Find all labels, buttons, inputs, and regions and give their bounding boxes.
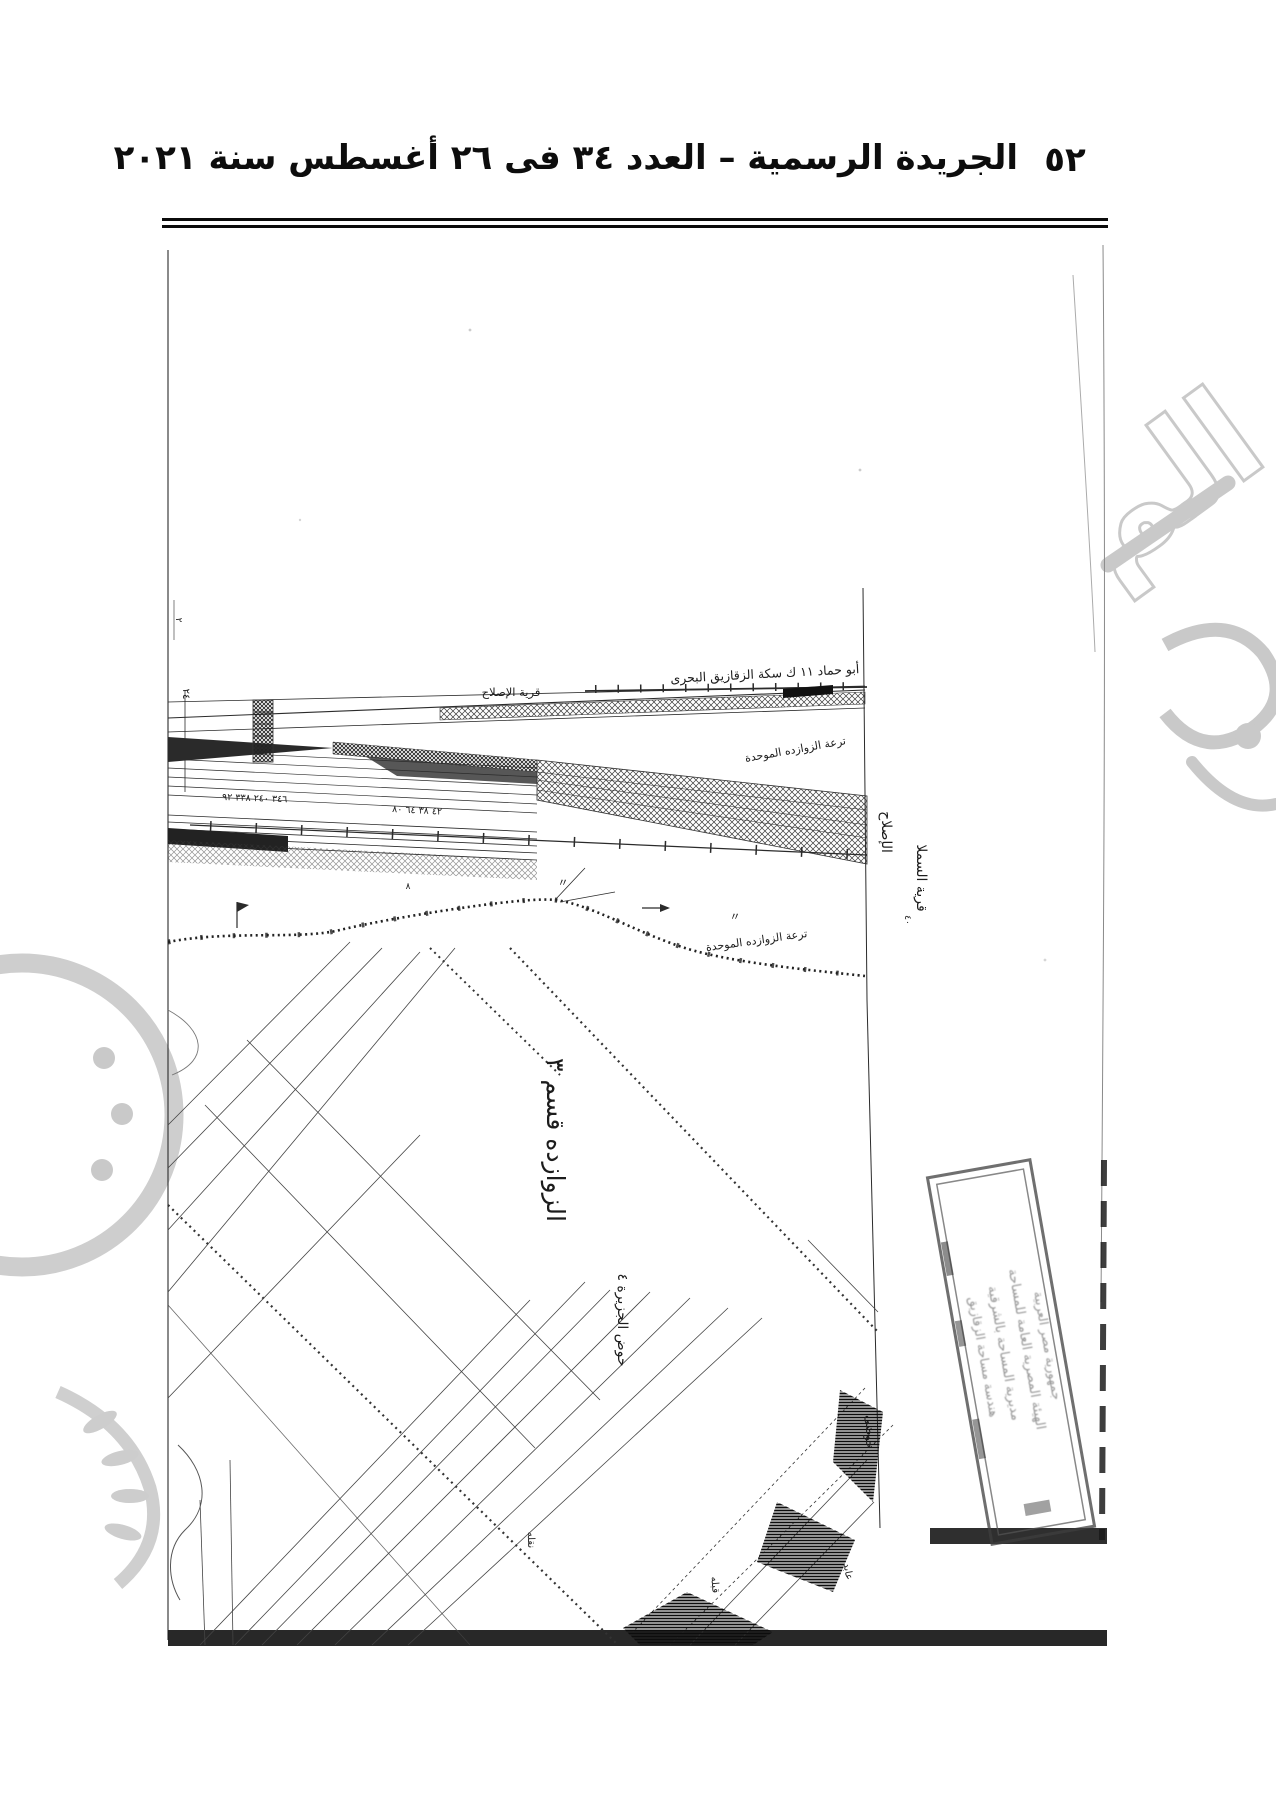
survey-numbers-row2: ٤٢ ٣٨ ٦٤ ٨٠ bbox=[392, 804, 442, 818]
canal-mid-label: ترعة الزوازده الموحدة bbox=[705, 927, 808, 954]
canal-hatched bbox=[623, 1388, 893, 1645]
scan-edges bbox=[168, 245, 1107, 1646]
basin-small-label: حوضى bbox=[862, 1415, 877, 1449]
parcel-small-label-1: قبله bbox=[708, 1576, 720, 1594]
right-small-mark: ٤٠ bbox=[902, 915, 912, 925]
official-stamp: جمهورية مصر العربية الهيئة المصرية العام… bbox=[927, 1160, 1094, 1544]
scanned-map: الم bbox=[0, 0, 1276, 1800]
watermark-swirl-right2 bbox=[1192, 762, 1276, 806]
canal-top-label: ترعة الزوازده الموحدة bbox=[744, 734, 847, 765]
left-num-label: ٢٤ bbox=[180, 689, 191, 700]
village-right-label: قرية السملا bbox=[913, 844, 929, 911]
gazette-page: الجريدة الرسمية – العدد ٣٤ فى ٢٦ أغسطس س… bbox=[0, 0, 1276, 1800]
watermark-swirl-right bbox=[1165, 630, 1276, 743]
watermark-fragments: الم bbox=[0, 359, 1276, 1584]
village-boundary bbox=[168, 868, 865, 1075]
ditto-mark-1: 〃 bbox=[558, 876, 569, 889]
circle-number: ٨ bbox=[406, 882, 411, 892]
section-label: الزوازده قسم ٣ bbox=[540, 1058, 570, 1222]
railway-label: أبو حماد ١١ ك سكة الزقازيق البحرى bbox=[670, 660, 860, 687]
survey-numbers-row1: ٣٤٦ ٢٤٠ ٣٣٨ ٩٢ bbox=[222, 792, 288, 805]
ditto-mark-2: 〃 bbox=[730, 910, 741, 923]
parcel-small-label-3: نقله bbox=[525, 1531, 537, 1548]
watermark-dot-right bbox=[1235, 723, 1261, 749]
village-top-label: قرية الإصلاح bbox=[482, 685, 541, 700]
village-right-label2: الإصلاح bbox=[878, 811, 894, 853]
parcel-small-label-2: عابد bbox=[841, 1562, 855, 1581]
corner-mark: ٢ bbox=[173, 618, 183, 623]
basin-label: حوض الجزيرة ٤ bbox=[614, 1273, 630, 1366]
watermark-circle-left bbox=[0, 963, 174, 1267]
watermark-letters: الم bbox=[1034, 359, 1276, 606]
